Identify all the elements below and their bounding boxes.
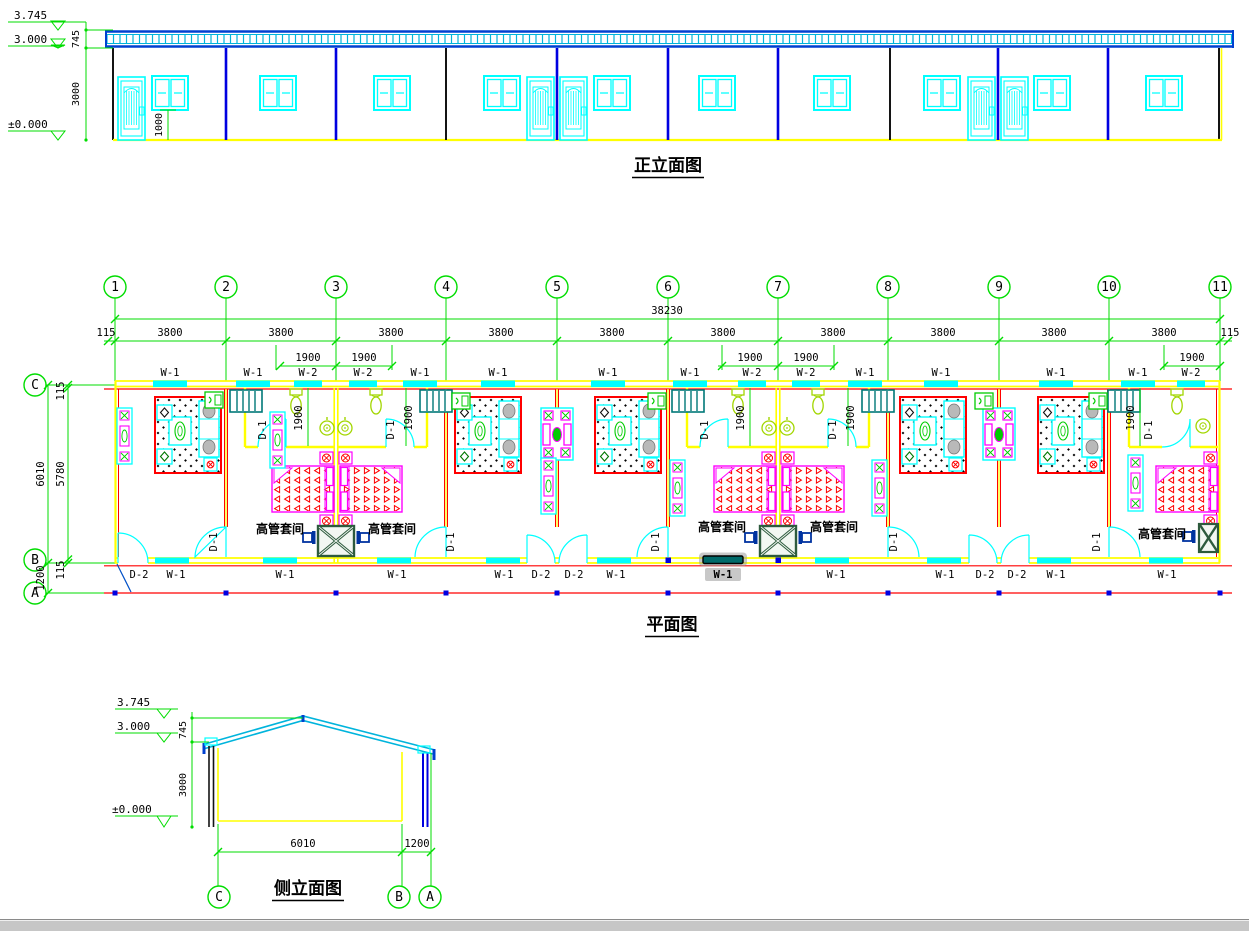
dim-bath-depth: 1900 (403, 405, 415, 430)
selected-window-tag: W-1 (705, 568, 741, 581)
window-tag: W-1 (932, 367, 951, 379)
grid-bubble-label: 1 (111, 280, 119, 295)
room-label: 高管套间 (368, 521, 416, 536)
window-tag: W-2 (797, 367, 816, 379)
dim-roof-band: 745 (71, 30, 82, 48)
dim-total-width: 38230 (651, 305, 683, 317)
door-tag: D-1 (208, 533, 220, 552)
window-tag: W-1 (489, 367, 508, 379)
door-tag: D-2 (976, 569, 995, 581)
dim-bay: 3800 (268, 327, 293, 339)
dim-canopy: 1200 (404, 838, 429, 850)
window-tag: W-1 (244, 367, 263, 379)
window-tag: W-1 (607, 569, 626, 581)
window-tag: W-1 (1158, 569, 1177, 581)
window-tag: W-2 (354, 367, 373, 379)
dim-bay: 3800 (820, 327, 845, 339)
door-tag: D-2 (565, 569, 584, 581)
window-tag: W-1 (856, 367, 875, 379)
door-tag: D-1 (699, 421, 711, 440)
room-label: 高管套间 (810, 519, 858, 534)
door-tag: D-1 (888, 533, 900, 552)
door-tag: D-1 (385, 421, 397, 440)
level-label: 3.745 (14, 9, 47, 22)
side-elevation-view: 3.745 3.000 ±0.000 745 3000 6010 1200 C … (112, 696, 441, 908)
dim-half-bay: 1900 (793, 352, 818, 364)
drawing-canvas[interactable]: 3.745 3.000 ±0.000 745 3000 1000 正立面图 1 … (0, 0, 1249, 920)
dim-sill-height: 1000 (154, 113, 165, 137)
grid-row-label: A (426, 890, 434, 905)
dim-bath-depth: 1900 (293, 405, 305, 430)
grid-bubble-label: 10 (1101, 280, 1117, 295)
plan-top-windows (153, 381, 1205, 388)
grid-row-label: C (31, 378, 39, 393)
front-elevation-view: 3.745 3.000 ±0.000 745 3000 1000 正立面图 (8, 9, 1233, 178)
window-tag: W-1 (276, 569, 295, 581)
door-tag: D-1 (827, 421, 839, 440)
dim-bay: 3800 (599, 327, 624, 339)
dim-bay: 3800 (488, 327, 513, 339)
dim-bath-depth: 1900 (1125, 405, 1137, 430)
grid-bubble-label: 8 (884, 280, 892, 295)
dim-half-bay: 1900 (295, 352, 320, 364)
dim-depth-total: 6010 (35, 461, 47, 486)
room-label: 高管套间 (1138, 526, 1186, 541)
door-tag: D-2 (532, 569, 551, 581)
level-label: ±0.000 (112, 803, 152, 816)
window-tag: W-1 (495, 569, 514, 581)
living-rooms (117, 392, 1143, 516)
grip-handle[interactable] (776, 558, 782, 564)
door-tag: D-1 (257, 421, 269, 440)
canopy-line (104, 591, 1232, 596)
dim-bay: 3800 (710, 327, 735, 339)
grid-bubble-label: 7 (774, 280, 782, 295)
window-tag: W-1 (1129, 367, 1148, 379)
floor-plan-title: 平面图 (647, 615, 698, 635)
side-elevation-title: 侧立面图 (274, 878, 342, 899)
dim-canopy: 1200 (35, 565, 47, 590)
front-elevation-title: 正立面图 (634, 155, 702, 176)
level-label: 3.745 (117, 696, 150, 709)
grid-bubble-label: 4 (442, 280, 450, 295)
window-tag: W-1 (411, 367, 430, 379)
dim-wall: 115 (55, 382, 67, 401)
door-tag: D-1 (650, 533, 662, 552)
level-label: ±0.000 (8, 118, 48, 131)
dim-bay: 3800 (1151, 327, 1176, 339)
window-tag: W-2 (1182, 367, 1201, 379)
door-tag: D-2 (1008, 569, 1027, 581)
window-tag: W-1 (681, 367, 700, 379)
window-tag: W-1 (1047, 367, 1066, 379)
floor-plan-view: 1 2 3 4 5 6 7 8 9 10 11 38230 3800 3800 … (24, 276, 1239, 637)
dim-end: 115 (97, 327, 116, 339)
dim-depth-inner: 5780 (55, 461, 67, 486)
level-label: 3.000 (14, 33, 47, 46)
grid-bubble-label: 6 (664, 280, 672, 295)
window-tag: W-2 (299, 367, 318, 379)
dim-bay: 3800 (930, 327, 955, 339)
grid-row-label: C (215, 890, 223, 905)
window-tag: W-1 (827, 569, 846, 581)
selected-window-entity[interactable] (699, 553, 747, 567)
dim-half-bay: 1900 (1179, 352, 1204, 364)
window-tag: W-1 (388, 569, 407, 581)
window-tag: W-1 (1047, 569, 1066, 581)
grid-bubble-label: 11 (1212, 280, 1228, 295)
door-tag: D-1 (1091, 533, 1103, 552)
dim-half-bay: 1900 (737, 352, 762, 364)
window-tag: W-1 (936, 569, 955, 581)
dim-half-bay: 1900 (351, 352, 376, 364)
window-tag: W-2 (743, 367, 762, 379)
window-tag: W-1 (599, 367, 618, 379)
level-label: 3.000 (117, 720, 150, 733)
status-bar (0, 919, 1249, 931)
svg-text:W-1: W-1 (714, 569, 733, 581)
room-label: 高管套间 (256, 521, 304, 536)
dim-bath-depth: 1900 (735, 405, 747, 430)
dim-span: 6010 (290, 838, 315, 850)
room-label: 高管套间 (698, 519, 746, 534)
dim-end: 115 (1221, 327, 1240, 339)
dim-bay: 3800 (1041, 327, 1066, 339)
door-tag: D-2 (130, 569, 149, 581)
dim-bay: 3800 (157, 327, 182, 339)
cad-drawing-area[interactable]: 3.745 3.000 ±0.000 745 3000 1000 正立面图 1 … (0, 0, 1249, 931)
grid-bubble-label: 2 (222, 280, 230, 295)
dim-roof-band: 745 (178, 721, 189, 739)
door-tag: D-1 (445, 533, 457, 552)
dim-wall-height: 3000 (71, 82, 82, 106)
grid-bubble-label: 3 (332, 280, 340, 295)
dim-wall: 115 (55, 561, 67, 580)
window-tag: W-1 (167, 569, 186, 581)
dim-bath-depth: 1900 (845, 405, 857, 430)
grip-handle[interactable] (666, 558, 672, 564)
window-tag: W-1 (161, 367, 180, 379)
grid-bubble-label: 9 (995, 280, 1003, 295)
grid-bubble-label: 5 (553, 280, 561, 295)
dim-wall-height: 3000 (178, 773, 189, 797)
grid-row-label: B (395, 890, 403, 905)
dim-bay: 3800 (378, 327, 403, 339)
door-tag: D-1 (1143, 421, 1155, 440)
